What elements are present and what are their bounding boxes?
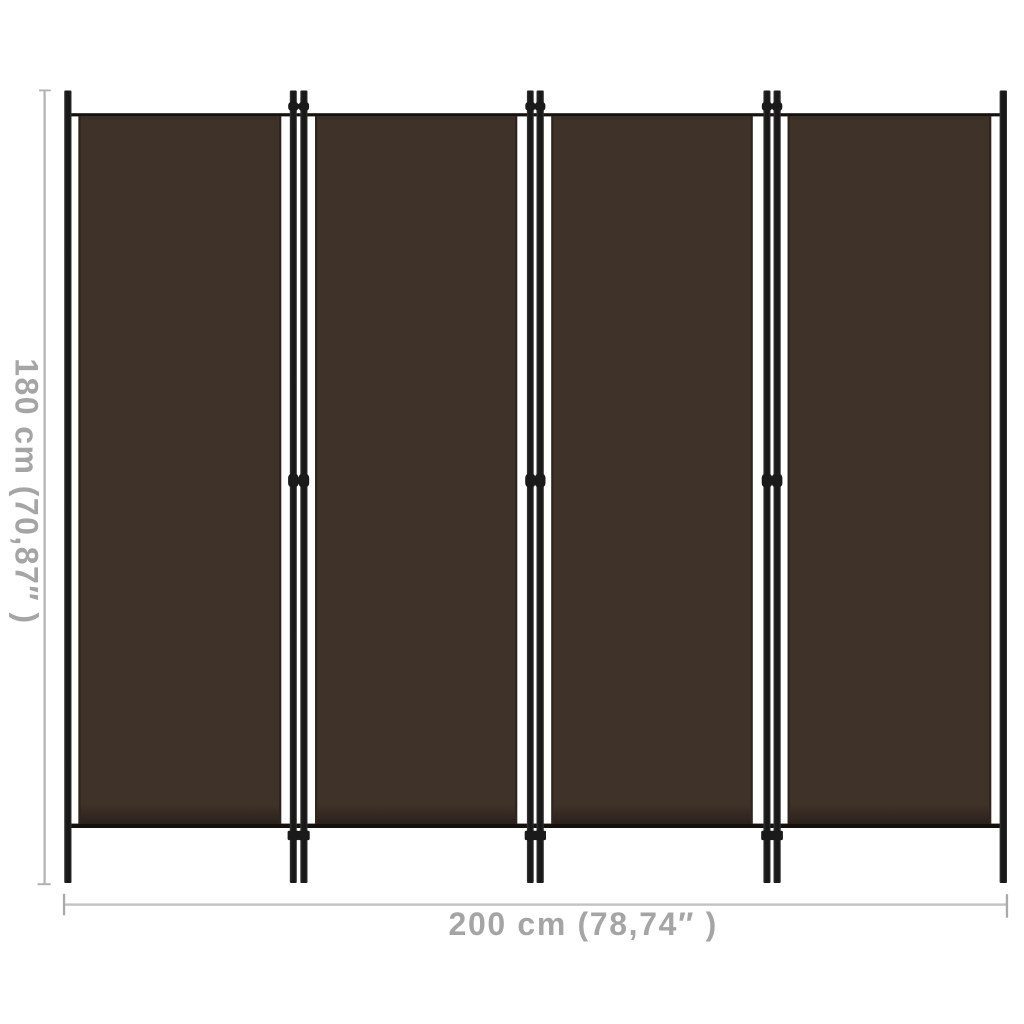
- svg-text:200 cm (78,74″ ): 200 cm (78,74″ ): [449, 906, 718, 942]
- svg-text:180 cm (70,87″ ): 180 cm (70,87″ ): [8, 358, 44, 624]
